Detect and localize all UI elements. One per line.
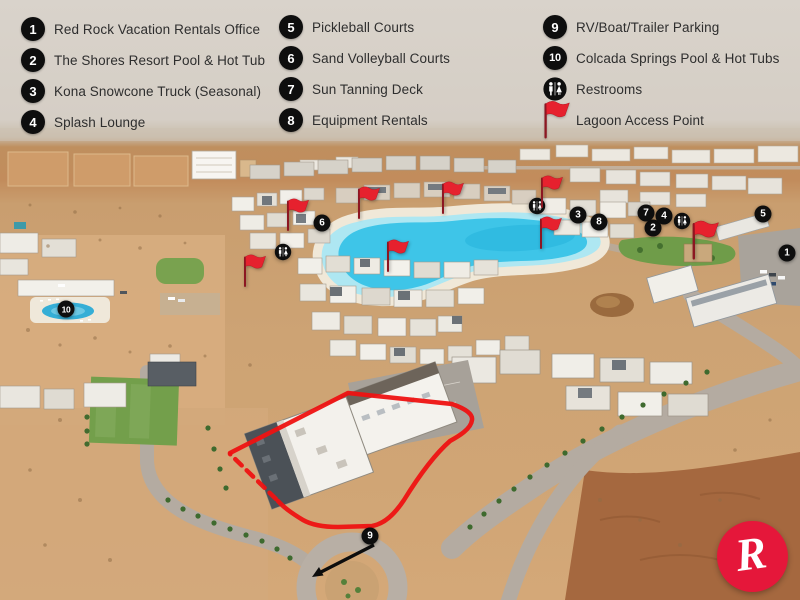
- aerial-photo-background: [0, 0, 800, 600]
- brand-logo-letter: R: [732, 525, 770, 582]
- brand-logo: R: [717, 521, 788, 592]
- resort-aerial-map: 12345678910 1 Red Rock Vacation Rentals …: [0, 0, 800, 600]
